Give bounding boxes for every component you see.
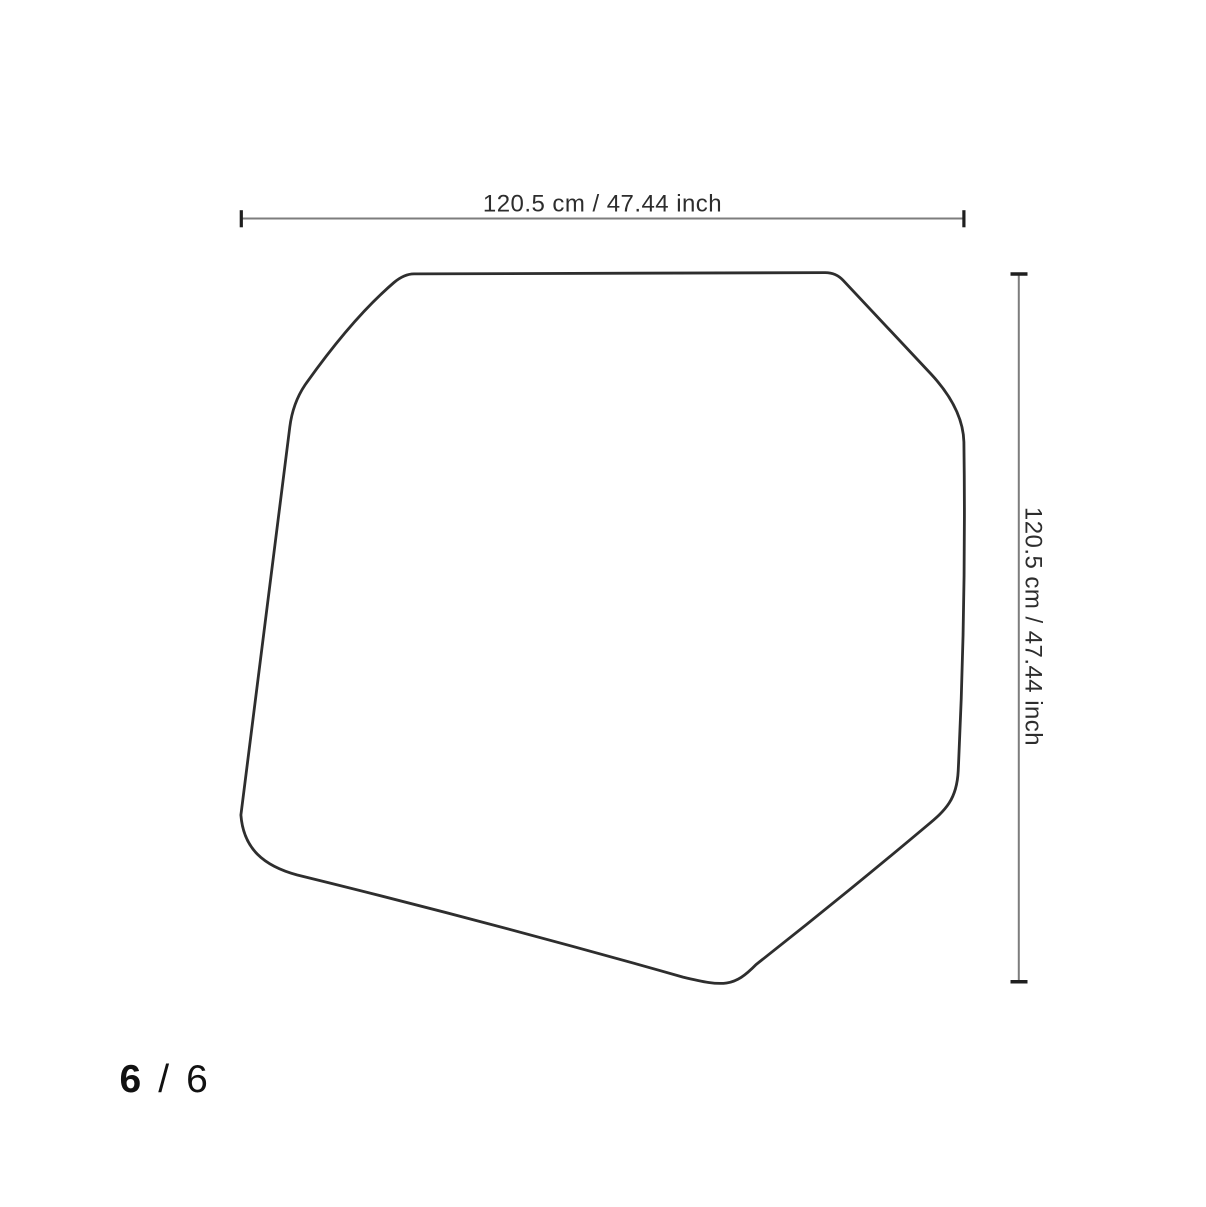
svg-text:120.5 cm / 47.44 inch: 120.5 cm / 47.44 inch [483,191,722,218]
svg-text:6 / 6: 6 / 6 [120,1058,211,1101]
svg-text:120.5 cm / 47.44 inch: 120.5 cm / 47.44 inch [1019,507,1046,746]
